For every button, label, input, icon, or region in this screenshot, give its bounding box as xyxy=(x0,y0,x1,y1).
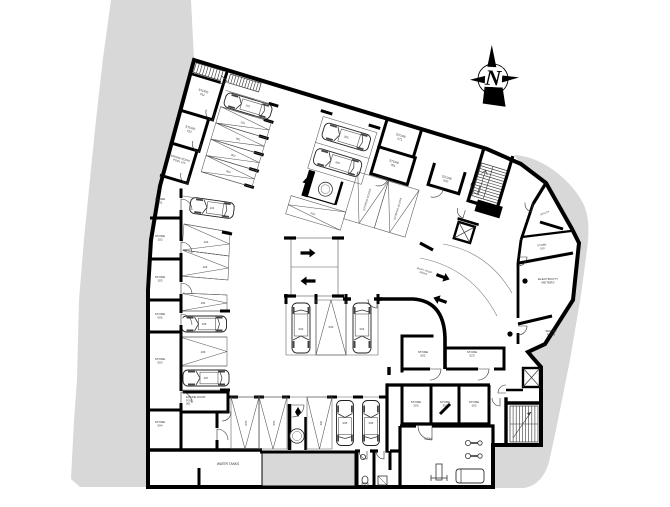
svg-text:103: 103 xyxy=(203,265,208,269)
svg-text:202: 202 xyxy=(471,404,476,408)
svg-text:203: 203 xyxy=(413,404,418,408)
svg-text:N: N xyxy=(483,65,502,91)
svg-text:006: 006 xyxy=(369,421,374,425)
svg-text:105: 105 xyxy=(202,322,207,326)
svg-text:103: 103 xyxy=(157,279,162,283)
svg-text:002: 002 xyxy=(299,327,304,331)
svg-text:106: 106 xyxy=(201,350,206,354)
svg-text:WATER TANKS: WATER TANKS xyxy=(217,462,239,466)
svg-text:107: 107 xyxy=(204,376,209,380)
svg-text:102: 102 xyxy=(204,240,209,244)
svg-text:001: 001 xyxy=(186,402,191,406)
svg-text:GYM: GYM xyxy=(424,437,432,441)
svg-text:VAN: VAN xyxy=(272,420,276,425)
svg-text:102: 102 xyxy=(157,238,162,242)
svg-text:101: 101 xyxy=(210,206,215,210)
svg-text:003: 003 xyxy=(157,361,162,365)
svg-text:003: 003 xyxy=(329,325,334,329)
svg-text:METERS: METERS xyxy=(542,281,555,285)
svg-text:VAN: VAN xyxy=(244,420,248,425)
svg-text:002: 002 xyxy=(420,354,425,358)
svg-text:101: 101 xyxy=(157,201,162,205)
svg-text:023: 023 xyxy=(469,354,474,358)
svg-text:004: 004 xyxy=(157,424,162,428)
svg-text:ROOM: ROOM xyxy=(547,332,556,336)
svg-text:005: 005 xyxy=(343,421,348,425)
svg-text:004: 004 xyxy=(319,421,323,426)
svg-text:104: 104 xyxy=(201,301,206,305)
svg-text:004: 004 xyxy=(360,327,365,331)
svg-text:005: 005 xyxy=(157,316,162,320)
